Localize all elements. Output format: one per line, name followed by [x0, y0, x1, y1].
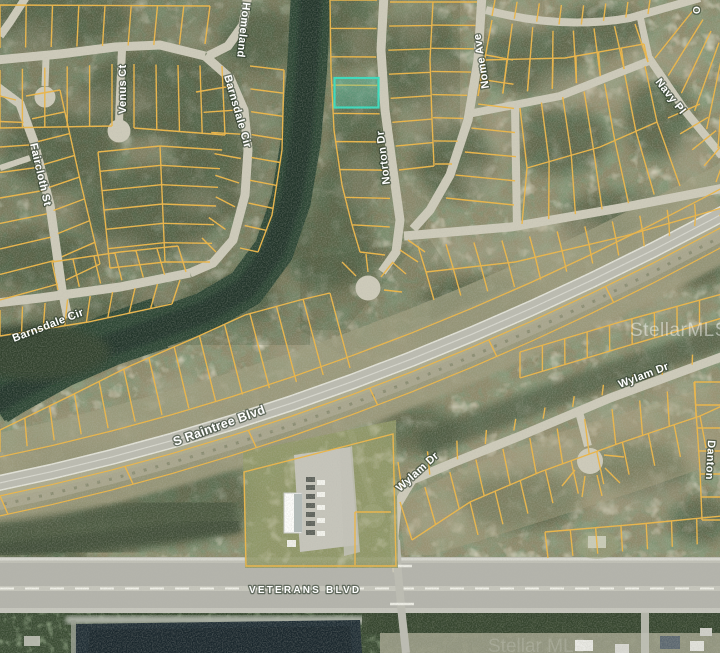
svg-text:Danton: Danton [703, 440, 717, 480]
svg-text:StellarMLS: StellarMLS [630, 320, 720, 341]
svg-text:VETERANS BLVD: VETERANS BLVD [249, 585, 361, 596]
svg-text:O: O [692, 6, 703, 14]
svg-text:Stellar MLS: Stellar MLS [488, 636, 586, 653]
svg-text:Venus Ct: Venus Ct [117, 64, 129, 114]
